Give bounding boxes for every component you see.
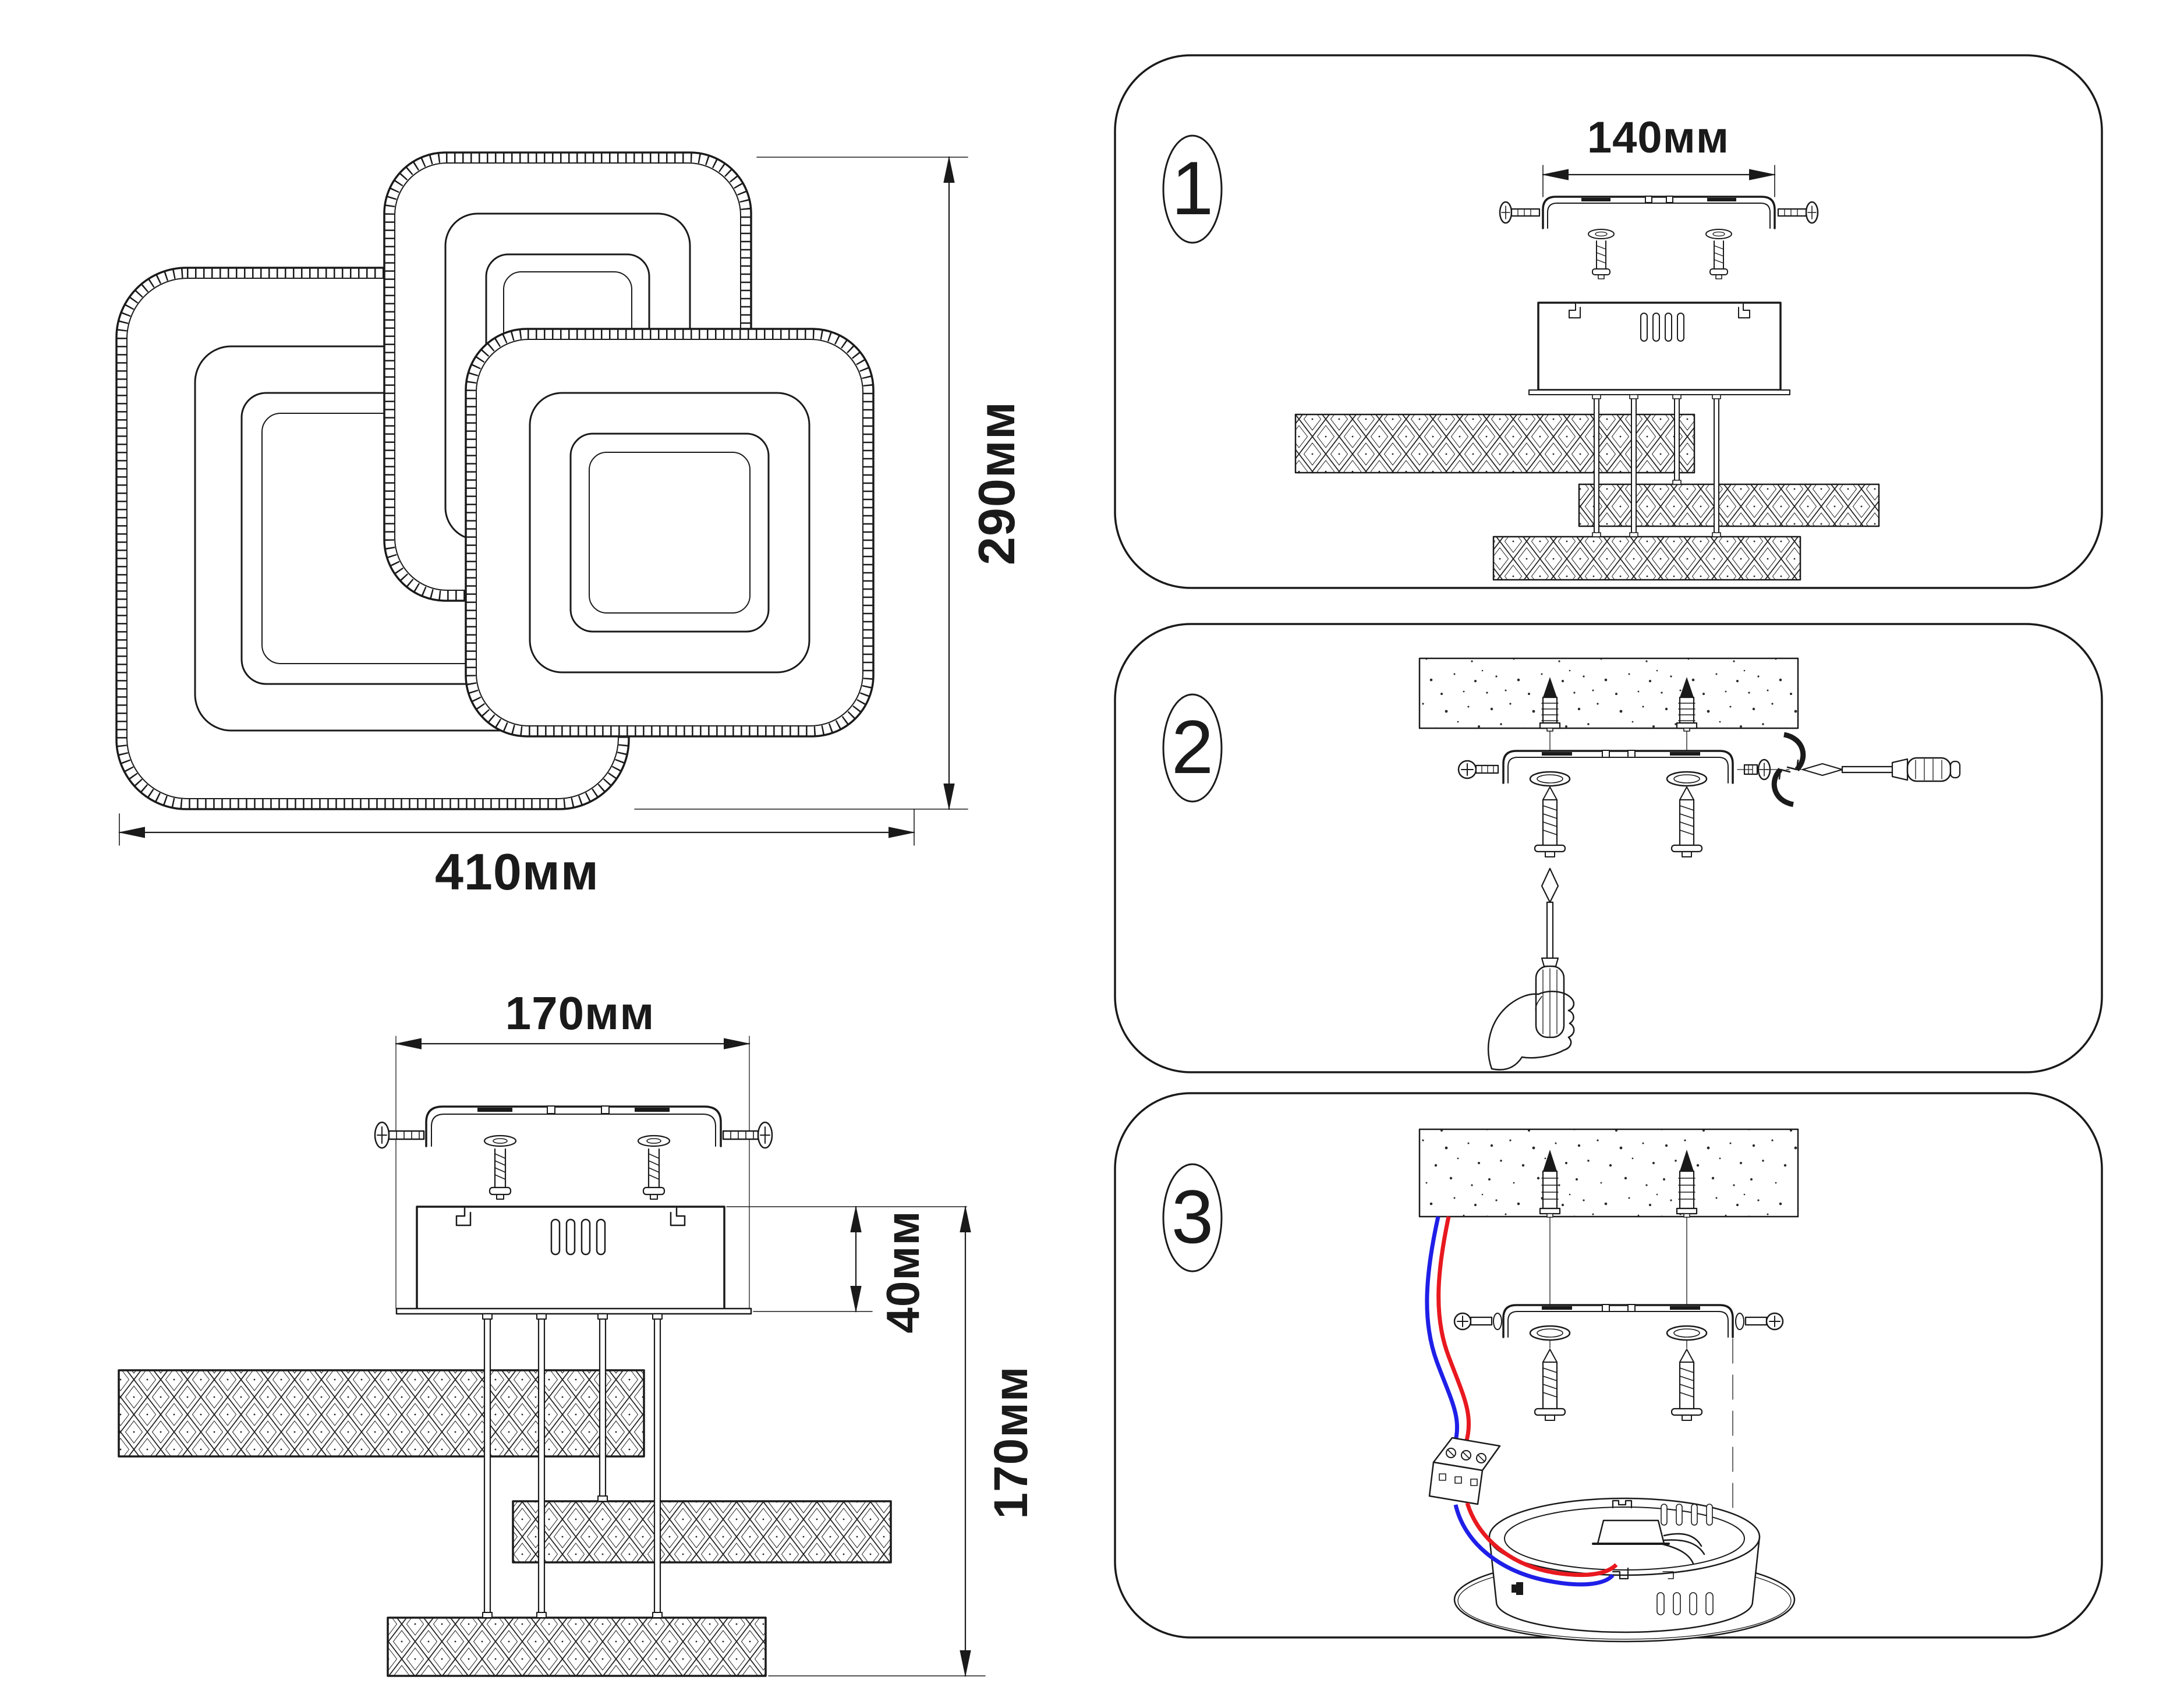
panel1-dimension-label: 140мм <box>1587 113 1729 162</box>
step-panel-1: 1 140мм <box>1115 55 2102 588</box>
screw-icon <box>490 1149 664 1199</box>
mounting-bracket-icon <box>426 1106 721 1146</box>
side-screw-right-icon <box>723 1122 772 1148</box>
crystal-square-right-icon <box>466 329 873 736</box>
instruction-sheet: 410мм 290мм 170мм <box>0 0 2184 1698</box>
figure-side-view: 170мм <box>119 987 1038 1676</box>
dimension-width-410: 410мм <box>119 809 914 901</box>
top-view-width-label: 410мм <box>435 843 599 901</box>
ceiling-slab-icon <box>1420 1129 1798 1217</box>
dimension-driver-height: 40мм <box>727 1207 967 1334</box>
ceiling-slab-icon <box>1420 658 1798 728</box>
side-view-total-height-label: 170мм <box>985 1366 1038 1519</box>
side-screw-left-icon <box>375 1122 424 1148</box>
diagram-canvas: 410мм 290мм 170мм <box>0 0 2184 1698</box>
mounting-bracket-icon <box>1543 196 1775 228</box>
suspension-rods-icon <box>483 1314 662 1618</box>
mounting-bracket-icon <box>1503 1304 1733 1340</box>
step-2-number: 2 <box>1171 704 1213 789</box>
step-panel-3: 3 <box>1115 1093 2102 1642</box>
side-view-bracket-width-label: 170мм <box>505 987 655 1039</box>
step-panel-2: 2 <box>1115 624 2102 1072</box>
side-view-driver-height-label: 40мм <box>877 1210 929 1333</box>
step-1-number: 1 <box>1171 146 1213 231</box>
figure-top-view: 410мм 290мм <box>116 153 1025 901</box>
top-view-height-label: 290мм <box>968 401 1025 565</box>
crystal-bar-icon <box>119 1370 891 1676</box>
driver-box-icon <box>1529 303 1790 395</box>
mounting-bracket-icon <box>1503 750 1733 786</box>
driver-box-icon <box>397 1207 751 1314</box>
step-3-number: 3 <box>1171 1174 1213 1259</box>
